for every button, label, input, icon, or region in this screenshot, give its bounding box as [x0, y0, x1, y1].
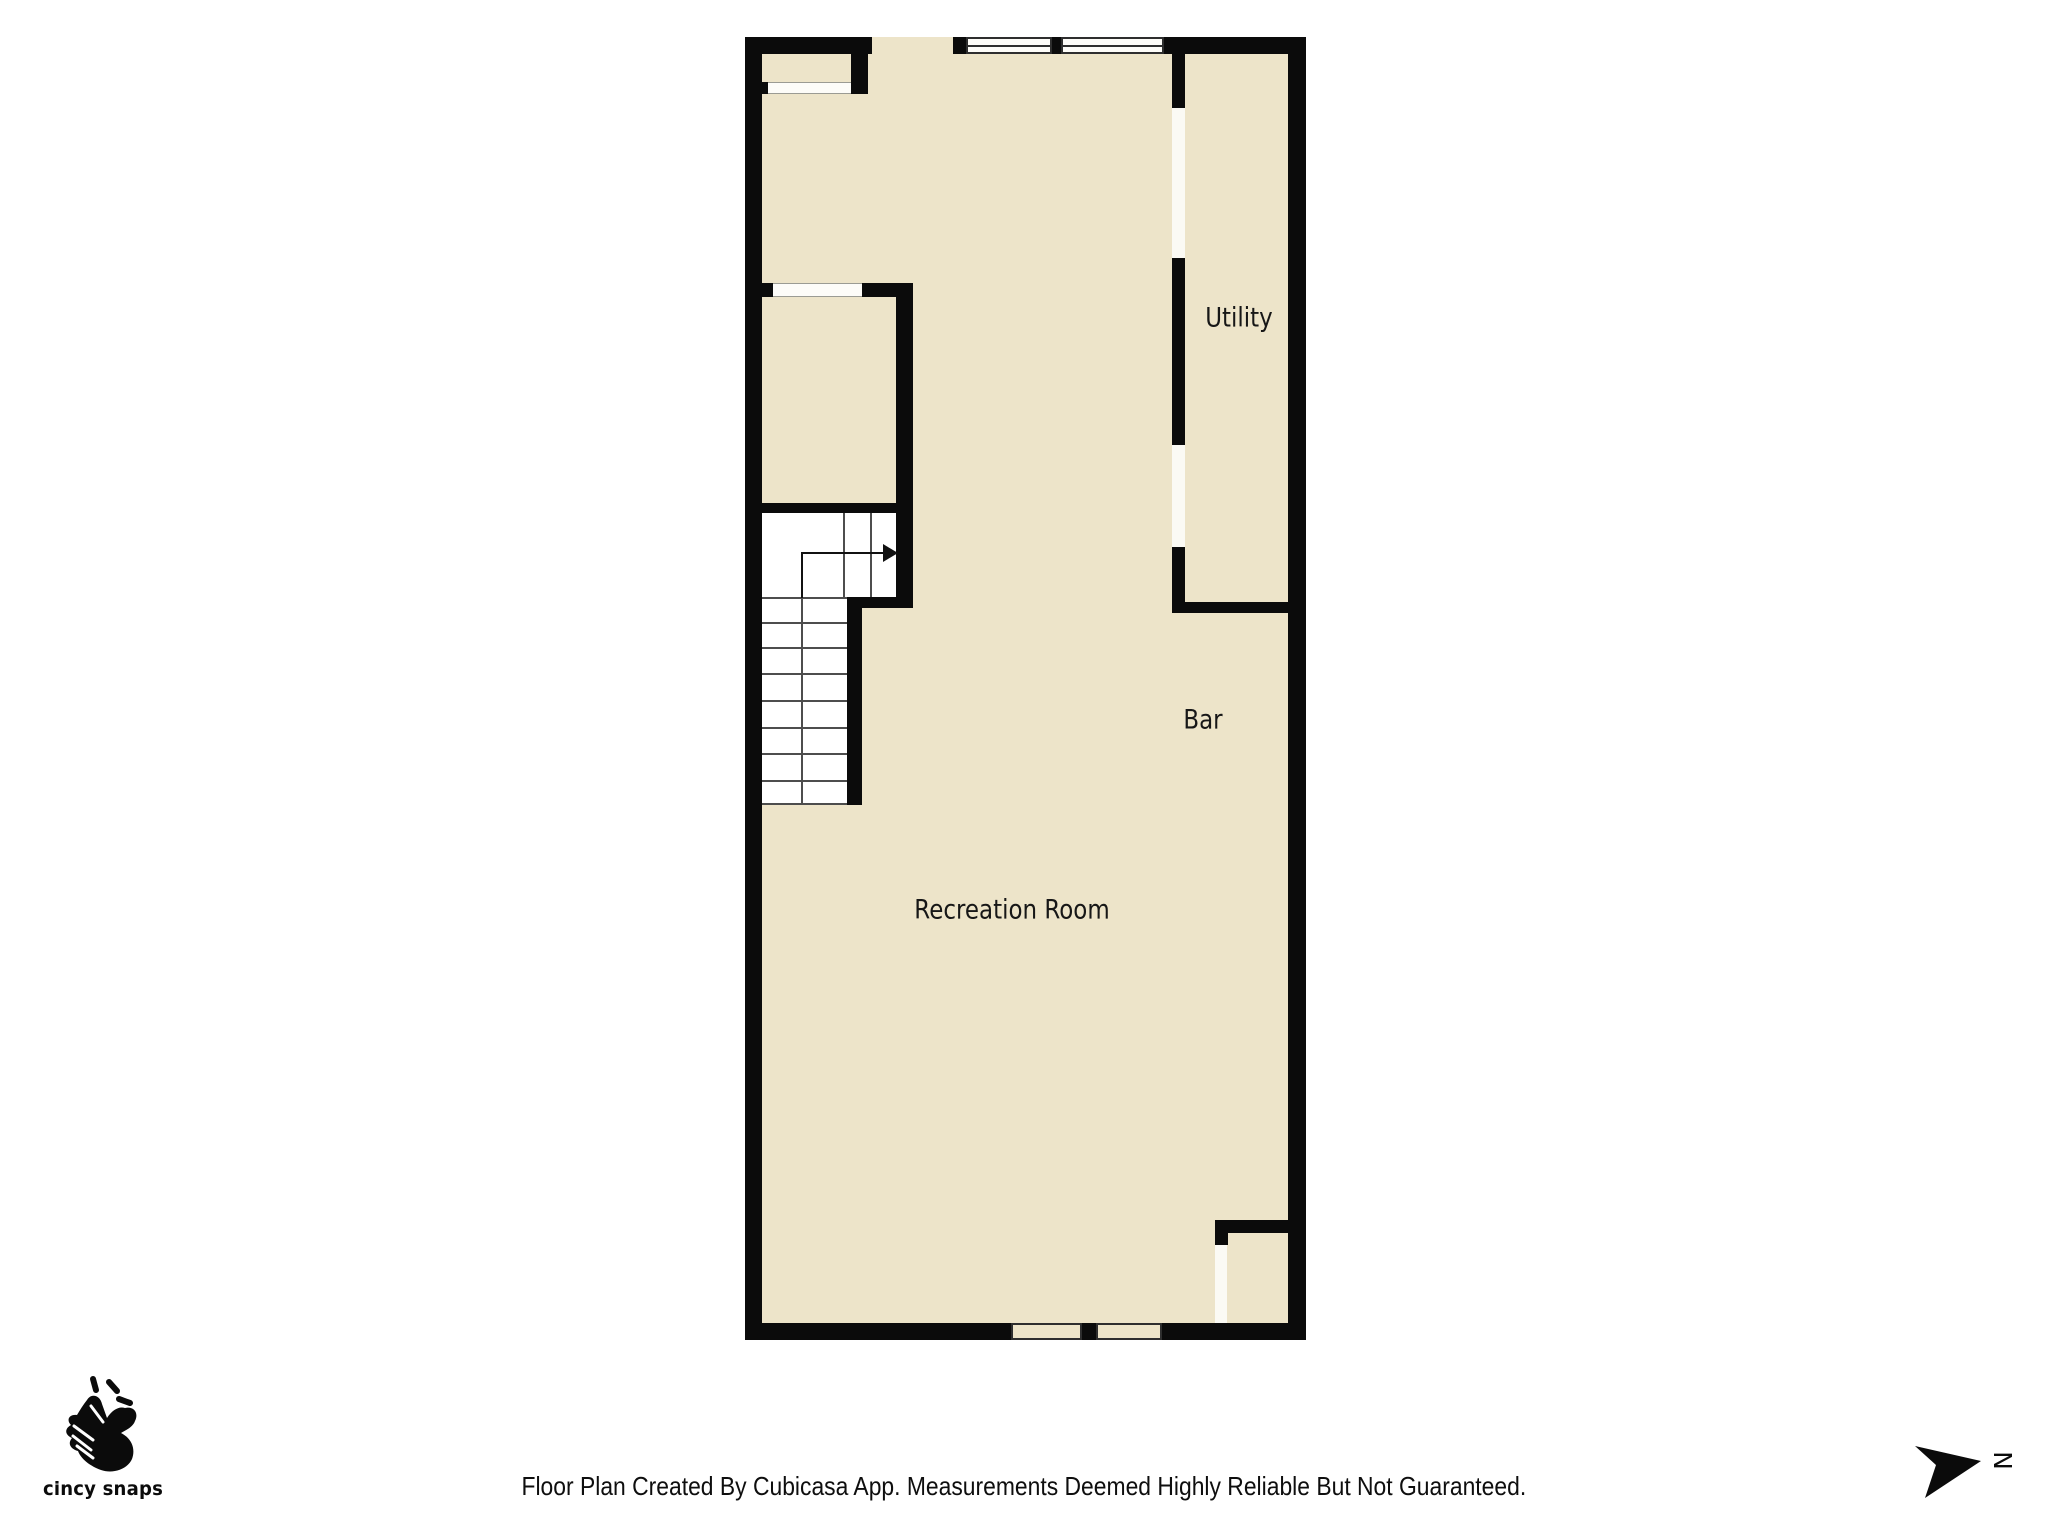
- wall: [745, 1323, 1011, 1340]
- footer-disclaimer: Floor Plan Created By Cubicasa App. Meas…: [0, 1471, 2048, 1502]
- wall: [745, 37, 762, 1340]
- stair-tread: [762, 753, 847, 755]
- door-opening: [1215, 1245, 1227, 1323]
- wall: [1172, 258, 1185, 445]
- stair-direction-arrow-head: [883, 544, 898, 562]
- stair-tread: [762, 673, 847, 675]
- wall: [1162, 1323, 1306, 1340]
- stair-tread: [762, 597, 847, 599]
- stair-direction-arrow: [801, 552, 803, 598]
- window: [768, 82, 851, 94]
- wall: [953, 37, 967, 54]
- wall: [896, 283, 913, 608]
- wall: [851, 37, 868, 94]
- wall: [847, 597, 862, 805]
- door-opening: [1172, 108, 1185, 258]
- wall: [1082, 1323, 1096, 1340]
- window: [1011, 1323, 1082, 1340]
- wall: [762, 503, 907, 513]
- stair-tread: [762, 803, 847, 805]
- window: [966, 37, 1052, 54]
- room-label-utility: Utility: [1205, 303, 1273, 334]
- wall: [745, 82, 768, 94]
- stair-tread: [870, 513, 872, 597]
- door-opening: [1172, 445, 1185, 547]
- stair-direction-arrow: [801, 552, 885, 554]
- window: [1061, 37, 1164, 54]
- north-label: N: [1988, 1451, 2017, 1470]
- floor-plan-canvas: Utility Bar Recreation Room: [745, 37, 1306, 1340]
- stair-tread: [762, 622, 847, 624]
- wall: [1172, 54, 1185, 108]
- window: [1096, 1323, 1162, 1340]
- floor-plan-page: Utility Bar Recreation Room cincy snaps: [0, 0, 2048, 1536]
- room-label-recreation-room: Recreation Room: [914, 895, 1109, 926]
- wall: [745, 283, 773, 297]
- stairs-landing: [762, 513, 896, 597]
- wall: [1172, 602, 1288, 613]
- stair-tread: [762, 780, 847, 782]
- stair-tread: [762, 700, 847, 702]
- wall: [1215, 1220, 1228, 1245]
- stair-tread: [762, 727, 847, 729]
- wall: [1288, 37, 1306, 1340]
- wall: [1164, 37, 1306, 54]
- hand-snap-icon: [51, 1374, 155, 1472]
- stair-tread: [843, 513, 845, 597]
- window: [773, 283, 862, 297]
- wall: [1051, 37, 1061, 54]
- stair-divider: [801, 597, 803, 805]
- stair-tread: [762, 647, 847, 649]
- room-label-bar: Bar: [1183, 705, 1222, 736]
